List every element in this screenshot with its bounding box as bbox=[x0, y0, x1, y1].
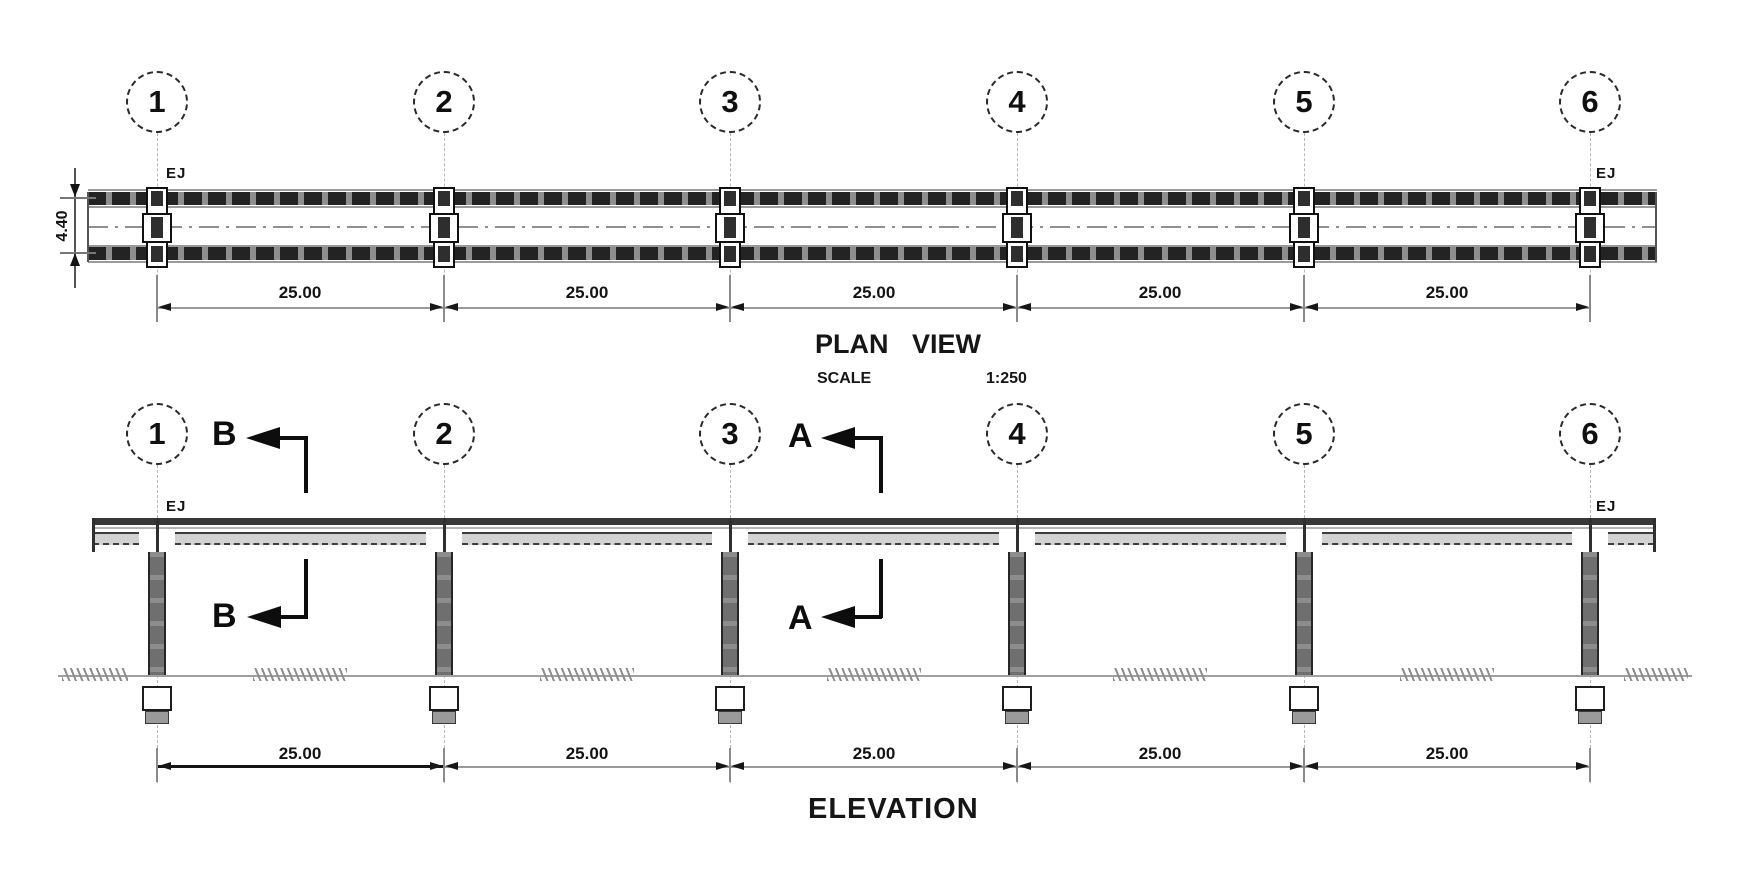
elev-column-5 bbox=[1295, 552, 1313, 676]
elev-dim-arrow bbox=[1290, 762, 1303, 770]
elev-ej-label-left: EJ bbox=[166, 498, 186, 515]
elevation-title: ELEVATION bbox=[808, 793, 979, 826]
section-marker-a-bottom-line bbox=[853, 615, 882, 619]
plan-pier-3 bbox=[715, 187, 745, 268]
plan-deck-edge-line-top-inner bbox=[88, 206, 1657, 208]
elev-footing-cap-3 bbox=[715, 686, 745, 711]
elev-ground-hatch bbox=[827, 668, 921, 681]
plan-dim-arrow bbox=[1018, 303, 1031, 311]
plan-dim-tick-5 bbox=[1303, 275, 1305, 322]
elev-grid-bubble-6: 6 bbox=[1559, 403, 1621, 465]
plan-ej-label-left: EJ bbox=[166, 165, 186, 182]
section-marker-b-bottom-stem bbox=[304, 559, 308, 618]
section-marker-a-top-arrow bbox=[821, 427, 855, 449]
elev-grid-bubble-5: 5 bbox=[1273, 403, 1335, 465]
plan-deck-bottom-edge-band bbox=[88, 247, 1657, 260]
elev-span-dim-text-2: 25.00 bbox=[566, 744, 609, 764]
elev-footing-base-5 bbox=[1292, 711, 1316, 724]
elev-deck-joint-5 bbox=[1303, 518, 1306, 552]
plan-ej-label-right: EJ bbox=[1596, 165, 1616, 182]
elev-span-dim-text-3: 25.00 bbox=[853, 744, 896, 764]
plan-span-dim-text-4: 25.00 bbox=[1139, 283, 1182, 303]
elev-column-4 bbox=[1008, 552, 1026, 676]
plan-width-dim-text: 4.40 bbox=[54, 196, 72, 256]
elev-dim-arrow bbox=[1018, 762, 1031, 770]
elev-girder-right-overhang bbox=[1608, 532, 1654, 545]
elev-deck-joint-4 bbox=[1016, 518, 1019, 552]
section-marker-a-top-stem bbox=[879, 437, 883, 493]
plan-deck-top-edge-band bbox=[88, 192, 1657, 205]
elev-deck-soffit-line bbox=[92, 527, 1656, 529]
section-marker-b-top-arrow bbox=[246, 427, 280, 449]
elev-dim-arrow bbox=[1576, 762, 1589, 770]
plan-scale-label: SCALE bbox=[817, 370, 871, 388]
section-marker-a-bottom-label: A bbox=[788, 601, 813, 635]
elev-column-2 bbox=[435, 552, 453, 676]
plan-dim-tick-1 bbox=[156, 275, 158, 322]
elev-grid-bubble-2: 2 bbox=[413, 403, 475, 465]
elev-deck-left-end bbox=[92, 518, 95, 552]
elev-ground-hatch bbox=[1624, 668, 1688, 681]
plan-view-title: PLAN VIEW bbox=[815, 329, 981, 360]
section-marker-b-bottom-label: B bbox=[212, 599, 237, 633]
elev-dim-arrow bbox=[158, 762, 171, 770]
plan-deck-edge-line-bottom-outer bbox=[88, 261, 1657, 263]
elev-span-dim-text-5: 25.00 bbox=[1426, 744, 1469, 764]
section-marker-b-bottom-arrow bbox=[247, 606, 281, 628]
plan-pier-4 bbox=[1002, 187, 1032, 268]
elev-footing-base-4 bbox=[1005, 711, 1029, 724]
plan-dim-arrow bbox=[1003, 303, 1016, 311]
plan-grid-bubble-6: 6 bbox=[1559, 71, 1621, 133]
elev-column-1 bbox=[148, 552, 166, 676]
plan-grid-bubble-1: 1 bbox=[126, 71, 188, 133]
elev-deck-joint-2 bbox=[443, 518, 446, 552]
elev-girder-span-2 bbox=[462, 532, 712, 545]
section-marker-a-bottom-arrow bbox=[821, 606, 855, 628]
section-marker-b-top-label: B bbox=[212, 417, 237, 451]
elev-span-dim-text-1: 25.00 bbox=[279, 744, 322, 764]
plan-grid-bubble-5: 5 bbox=[1273, 71, 1335, 133]
elev-girder-span-4 bbox=[1035, 532, 1286, 545]
plan-scale-value: 1:250 bbox=[986, 370, 1027, 388]
plan-dim-arrow bbox=[158, 303, 171, 311]
bridge-drawing-sheet: 1 2 3 4 5 6 EJ EJ 4.40 bbox=[0, 0, 1740, 873]
elev-deck-right-end bbox=[1653, 518, 1656, 552]
elev-footing-cap-6 bbox=[1575, 686, 1605, 711]
plan-dim-arrow bbox=[1290, 303, 1303, 311]
elev-footing-base-6 bbox=[1578, 711, 1602, 724]
elev-span-dim-text-4: 25.00 bbox=[1139, 744, 1182, 764]
elev-dim-arrow bbox=[430, 762, 443, 770]
elev-girder-span-5 bbox=[1322, 532, 1572, 545]
elev-ej-label-right: EJ bbox=[1596, 498, 1616, 515]
plan-dim-arrow bbox=[445, 303, 458, 311]
elev-ground-hatch bbox=[1113, 668, 1207, 681]
elev-dim-arrow bbox=[716, 762, 729, 770]
elev-girder-left-overhang bbox=[93, 532, 139, 545]
elev-ground-hatch bbox=[540, 668, 634, 681]
plan-deck-right-end bbox=[1655, 192, 1657, 262]
plan-dim-arrow bbox=[1576, 303, 1589, 311]
section-marker-a-top-label: A bbox=[788, 419, 813, 453]
plan-dim-tick-3 bbox=[729, 275, 731, 322]
elev-grid-bubble-4: 4 bbox=[986, 403, 1048, 465]
elev-grid-bubble-1: 1 bbox=[126, 403, 188, 465]
elev-deck-joint-1 bbox=[156, 518, 159, 552]
plan-dim-tick-4 bbox=[1016, 275, 1018, 322]
elev-footing-base-2 bbox=[432, 711, 456, 724]
elev-footing-cap-4 bbox=[1002, 686, 1032, 711]
plan-dim-arrow bbox=[430, 303, 443, 311]
plan-span-dim-text-3: 25.00 bbox=[853, 283, 896, 303]
plan-grid-bubble-4: 4 bbox=[986, 71, 1048, 133]
plan-grid-bubble-2: 2 bbox=[413, 71, 475, 133]
elev-column-3 bbox=[721, 552, 739, 676]
elev-grid-bubble-3: 3 bbox=[699, 403, 761, 465]
elev-dim-arrow bbox=[445, 762, 458, 770]
elev-girder-span-1 bbox=[175, 532, 426, 545]
elev-deck-joint-6 bbox=[1589, 518, 1592, 552]
elev-ground-hatch bbox=[62, 668, 128, 681]
plan-dim-arrow bbox=[731, 303, 744, 311]
section-marker-b-top-stem bbox=[304, 437, 308, 493]
plan-span-dim-text-2: 25.00 bbox=[566, 283, 609, 303]
elev-ground-hatch bbox=[253, 668, 347, 681]
plan-deck-centerline bbox=[88, 226, 1657, 228]
plan-dim-tick-2 bbox=[443, 275, 445, 322]
plan-dim-tick-6 bbox=[1589, 275, 1591, 322]
plan-span-dim-line bbox=[157, 307, 1590, 309]
plan-pier-1 bbox=[142, 187, 172, 268]
plan-deck-edge-line-top-outer bbox=[88, 189, 1657, 191]
plan-dim-arrow bbox=[1305, 303, 1318, 311]
plan-pier-2 bbox=[429, 187, 459, 268]
plan-pier-6 bbox=[1575, 187, 1605, 268]
plan-dim-arrow bbox=[716, 303, 729, 311]
plan-grid-bubble-3: 3 bbox=[699, 71, 761, 133]
elev-deck-slab bbox=[92, 518, 1656, 525]
elev-span-dim-line-bold bbox=[157, 765, 444, 768]
plan-pier-5 bbox=[1289, 187, 1319, 268]
elev-footing-base-3 bbox=[718, 711, 742, 724]
elev-dim-arrow bbox=[1003, 762, 1016, 770]
plan-span-dim-text-5: 25.00 bbox=[1426, 283, 1469, 303]
plan-span-dim-text-1: 25.00 bbox=[279, 283, 322, 303]
elev-deck-joint-3 bbox=[729, 518, 732, 552]
section-marker-a-bottom-stem bbox=[879, 559, 883, 618]
elev-girder-span-3 bbox=[748, 532, 999, 545]
elev-dim-arrow bbox=[731, 762, 744, 770]
elev-footing-cap-1 bbox=[142, 686, 172, 711]
elev-dim-tick-6 bbox=[1589, 748, 1591, 782]
elev-footing-base-1 bbox=[145, 711, 169, 724]
elev-ground-hatch bbox=[1400, 668, 1494, 681]
elev-dim-arrow bbox=[1305, 762, 1318, 770]
elev-footing-cap-5 bbox=[1289, 686, 1319, 711]
elev-footing-cap-2 bbox=[429, 686, 459, 711]
elev-column-6 bbox=[1581, 552, 1599, 676]
